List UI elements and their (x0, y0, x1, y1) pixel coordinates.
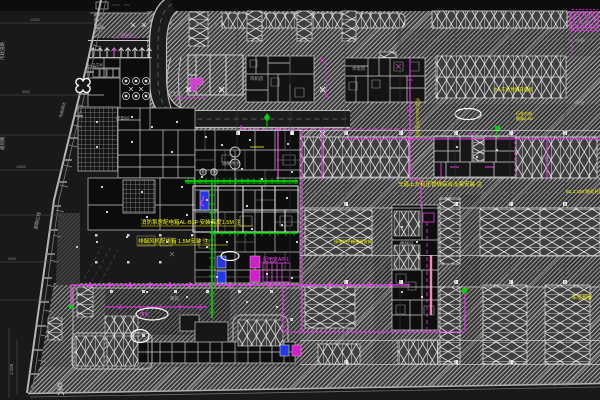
svg-text:B1层平面图 1:150: B1层平面图 1:150 (548, 380, 581, 386)
svg-text:库房: 库房 (170, 295, 179, 302)
svg-text:车位: 车位 (318, 225, 327, 232)
svg-text:水泵房: 水泵房 (352, 65, 366, 72)
svg-text:配电间: 配电间 (116, 115, 130, 122)
svg-text:风机房: 风机房 (250, 75, 264, 82)
svg-text:接地端子箱预留安装: 接地端子箱预留安装 (334, 238, 373, 245)
svg-text:车位预留: 车位预留 (572, 294, 592, 301)
svg-text:车位: 车位 (540, 155, 549, 162)
svg-text:12000: 12000 (30, 18, 40, 22)
svg-text:消防泵房配电箱AL-B1F 安装高度1.5M 注: 消防泵房配电箱AL-B1F 安装高度1.5M 注 (141, 218, 241, 226)
svg-text:B1 1:150 防火分区: B1 1:150 防火分区 (566, 188, 600, 195)
svg-text:排烟风机配电箱 1.5M安装 注: 排烟风机配电箱 1.5M安装 注 (138, 237, 209, 245)
svg-text:桥架300x100沿梁底: 桥架300x100沿梁底 (414, 98, 421, 138)
svg-text:车道上方有压管线综合支架安装 注: 车道上方有压管线综合支架安装 注 (398, 180, 483, 188)
svg-text:注1:车位预留充电桩: 注1:车位预留充电桩 (493, 86, 533, 93)
svg-text:用房: 用房 (140, 311, 149, 318)
svg-text:消防水池: 消防水池 (222, 160, 240, 167)
svg-text:9000: 9000 (8, 257, 16, 261)
svg-text:配电室AP-1: 配电室AP-1 (263, 256, 289, 263)
svg-text:8000: 8000 (22, 90, 30, 94)
svg-text:限高2.2M: 限高2.2M (516, 115, 533, 121)
svg-text:1:150: 1:150 (9, 363, 14, 375)
svg-text:商业: 商业 (575, 99, 584, 106)
svg-text:T4栋: T4栋 (575, 37, 585, 44)
svg-text:人行入口: 人行入口 (118, 32, 132, 37)
svg-text:15000: 15000 (16, 165, 26, 169)
svg-text:楼梯间: 楼梯间 (400, 240, 414, 247)
svg-text:卫生间: 卫生间 (168, 90, 182, 97)
